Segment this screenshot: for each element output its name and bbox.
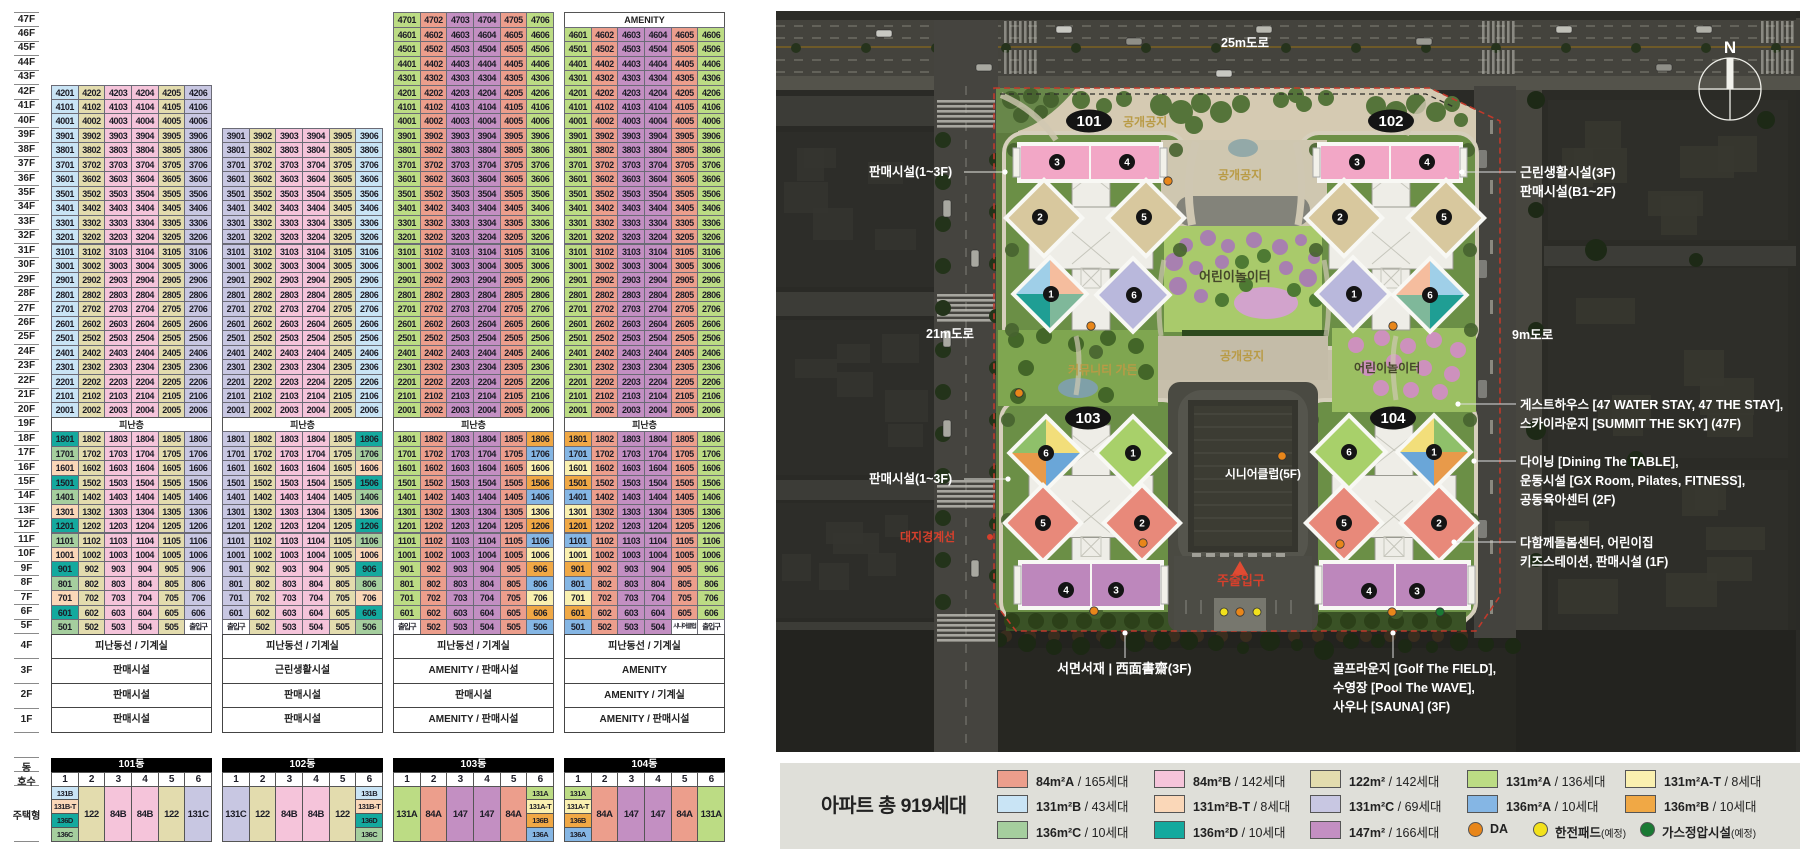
svg-text:공개공지: 공개공지 xyxy=(1123,114,1167,129)
svg-text:서면서재 | 西面書齋(3F): 서면서재 | 西面書齋(3F) xyxy=(1057,661,1192,676)
svg-text:1: 1 xyxy=(1130,448,1136,459)
svg-text:공동육아센터 (2F): 공동육아센터 (2F) xyxy=(1520,492,1615,507)
svg-text:2: 2 xyxy=(1337,212,1343,223)
svg-text:25m도로: 25m도로 xyxy=(1221,36,1270,50)
svg-text:3: 3 xyxy=(1414,586,1420,597)
svg-text:4: 4 xyxy=(1124,157,1130,168)
svg-text:골프라운지 [Golf The FIELD],: 골프라운지 [Golf The FIELD], xyxy=(1333,661,1496,676)
svg-text:사우나 [SAUNA] (3F): 사우나 [SAUNA] (3F) xyxy=(1333,699,1450,714)
svg-text:102: 102 xyxy=(1378,113,1403,130)
svg-text:3: 3 xyxy=(1054,157,1060,168)
svg-text:1: 1 xyxy=(1351,289,1357,300)
svg-text:5: 5 xyxy=(1441,212,1447,223)
svg-text:6: 6 xyxy=(1043,448,1049,459)
svg-text:2: 2 xyxy=(1436,518,1442,529)
svg-text:1: 1 xyxy=(1431,447,1437,458)
svg-text:5: 5 xyxy=(1341,518,1347,529)
svg-text:운동시설 [GX Room, Pilates, FITNES: 운동시설 [GX Room, Pilates, FITNESS], xyxy=(1520,473,1745,488)
svg-text:5: 5 xyxy=(1040,518,1046,529)
svg-text:104: 104 xyxy=(1380,410,1406,427)
svg-text:4: 4 xyxy=(1366,586,1372,597)
svg-text:커뮤니티 가든: 커뮤니티 가든 xyxy=(1068,362,1138,377)
svg-text:6: 6 xyxy=(1131,290,1137,301)
svg-text:2: 2 xyxy=(1139,518,1145,529)
svg-text:4: 4 xyxy=(1063,585,1069,596)
svg-text:6: 6 xyxy=(1427,290,1433,301)
svg-text:스카이라운지 [SUMMIT THE SKY] (47F): 스카이라운지 [SUMMIT THE SKY] (47F) xyxy=(1520,416,1741,431)
svg-text:5: 5 xyxy=(1141,212,1147,223)
svg-text:대지경계선: 대지경계선 xyxy=(900,529,955,544)
svg-text:4: 4 xyxy=(1424,157,1430,168)
svg-text:3: 3 xyxy=(1113,585,1119,596)
svg-text:키즈스테이션, 판매시설 (1F): 키즈스테이션, 판매시설 (1F) xyxy=(1520,554,1668,569)
svg-text:103: 103 xyxy=(1075,410,1100,427)
svg-text:어린이놀이터: 어린이놀이터 xyxy=(1199,269,1271,284)
svg-text:시니어클럽(5F): 시니어클럽(5F) xyxy=(1225,467,1301,481)
svg-text:1: 1 xyxy=(1048,289,1054,300)
svg-text:6: 6 xyxy=(1346,447,1352,458)
svg-text:공개공지: 공개공지 xyxy=(1220,348,1264,363)
svg-text:판매시설(1~3F): 판매시설(1~3F) xyxy=(869,164,952,179)
svg-text:3: 3 xyxy=(1354,157,1360,168)
svg-text:21m도로: 21m도로 xyxy=(926,327,975,341)
svg-text:N: N xyxy=(1724,38,1736,57)
svg-text:수영장 [Pool The WAVE],: 수영장 [Pool The WAVE], xyxy=(1333,680,1475,695)
svg-text:게스트하우스 [47 WATER STAY, 47 THE: 게스트하우스 [47 WATER STAY, 47 THE STAY], xyxy=(1520,397,1783,412)
svg-text:어린이놀이터: 어린이놀이터 xyxy=(1354,360,1420,375)
svg-text:주출입구: 주출입구 xyxy=(1217,573,1265,588)
svg-text:다함께돌봄센터, 어린이집: 다함께돌봄센터, 어린이집 xyxy=(1520,535,1653,550)
svg-text:101: 101 xyxy=(1076,113,1101,130)
svg-text:다이닝 [Dining The TABLE],: 다이닝 [Dining The TABLE], xyxy=(1520,454,1679,469)
svg-text:판매시설(1~3F): 판매시설(1~3F) xyxy=(869,471,952,486)
svg-text:판매시설(B1~2F): 판매시설(B1~2F) xyxy=(1520,184,1616,199)
svg-text:9m도로: 9m도로 xyxy=(1512,328,1554,342)
svg-text:공개공지: 공개공지 xyxy=(1218,167,1262,182)
svg-text:2: 2 xyxy=(1037,212,1043,223)
svg-text:근린생활시설(3F): 근린생활시설(3F) xyxy=(1520,165,1616,180)
